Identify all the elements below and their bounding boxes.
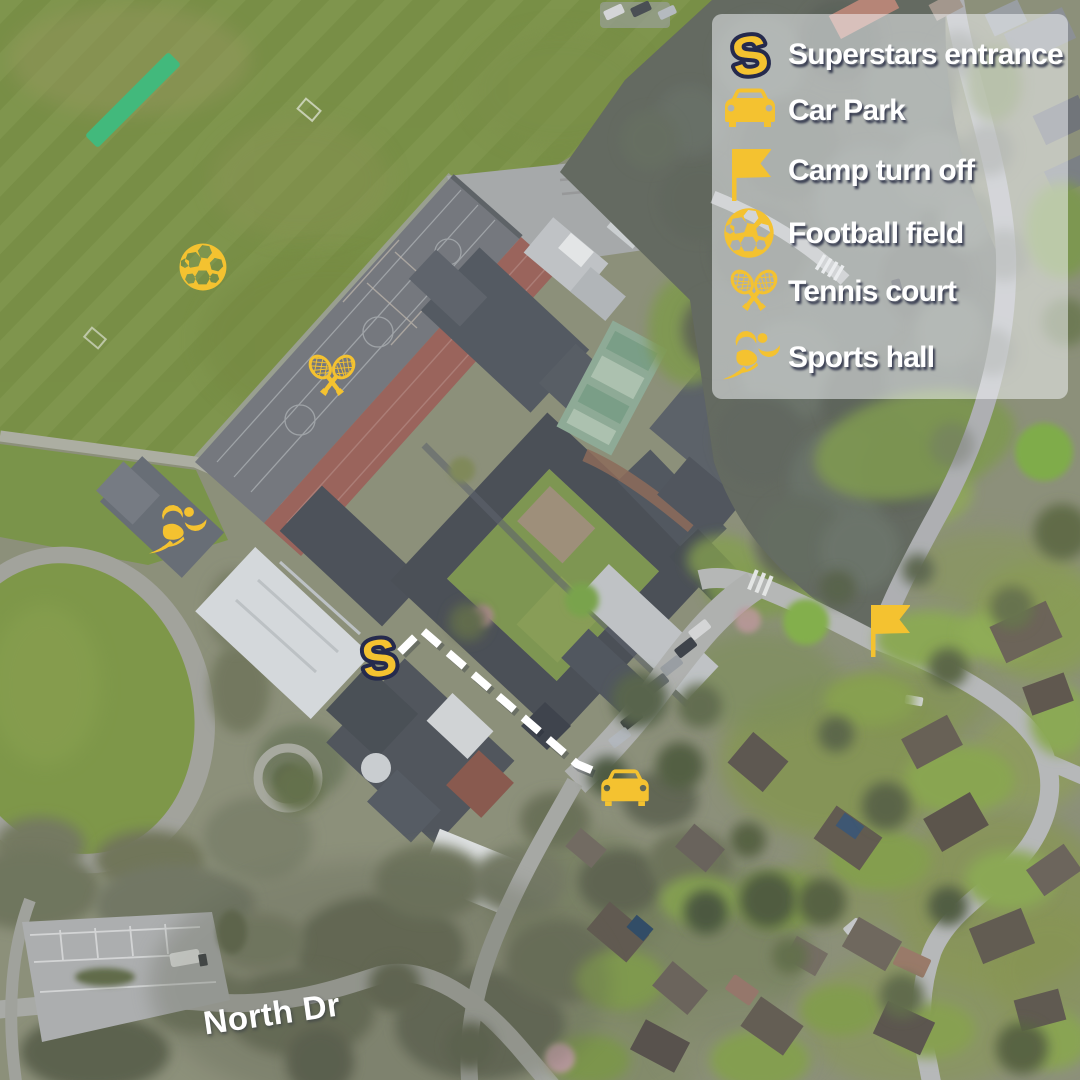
svg-text:Tennis court: Tennis court bbox=[788, 275, 957, 308]
svg-text:Camp turn off: Camp turn off bbox=[788, 154, 976, 187]
svg-text:Football field: Football field bbox=[788, 217, 963, 250]
svg-text:Car Park: Car Park bbox=[788, 94, 906, 127]
svg-text:Superstars entrance: Superstars entrance bbox=[788, 38, 1063, 71]
svg-text:Sports hall: Sports hall bbox=[788, 341, 934, 374]
